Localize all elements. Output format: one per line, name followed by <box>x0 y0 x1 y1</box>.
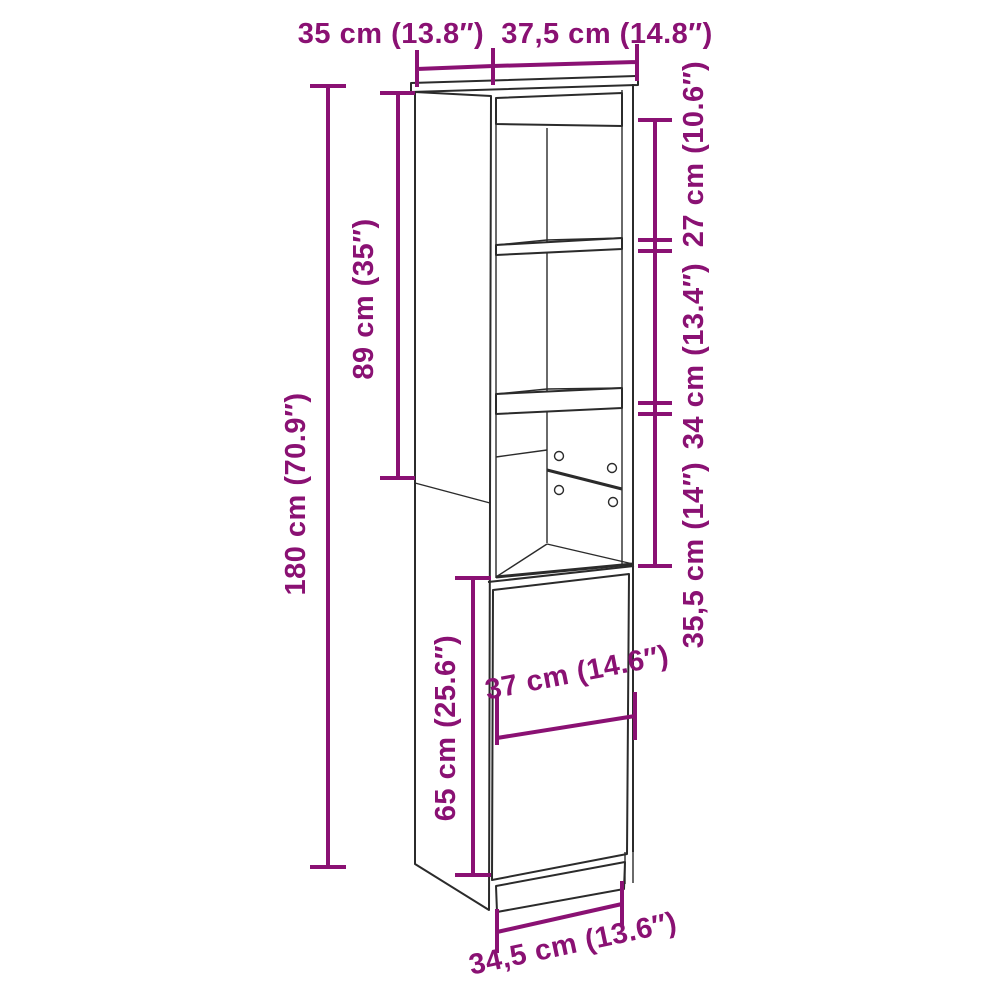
screw-dot <box>555 452 564 461</box>
niche-top-rail <box>496 93 622 126</box>
niche-floor-back-edge <box>547 544 633 564</box>
dim-niche-stack: 27 cm (10.6″) 34 cm (13.4″) 35,5 cm (14″… <box>638 61 710 648</box>
screw-dot <box>609 498 618 507</box>
product-dimension-image: 35 cm (13.8″) 37,5 cm (14.8″) 180 cm (70… <box>0 0 1000 1000</box>
dim-top-depth: 35 cm (13.8″) <box>298 18 493 87</box>
dim-top-depth-label: 35 cm (13.8″) <box>298 18 484 50</box>
dim-total-height-label: 180 cm (70.9″) <box>280 392 312 595</box>
dim-upper-height-label: 89 cm (35″) <box>348 218 380 379</box>
dim-niche-stack-line <box>638 120 672 566</box>
cabinet-right-foot <box>625 852 633 884</box>
screw-dot <box>608 464 617 473</box>
dim-total-height: 180 cm (70.9″) <box>280 86 346 867</box>
dim-niche-top-label: 27 cm (10.6″) <box>678 61 710 247</box>
dim-niche-bottom-label: 35,5 cm (14″) <box>678 462 710 648</box>
dim-total-height-line <box>310 86 346 867</box>
dim-upper-height: 89 cm (35″) <box>348 93 415 478</box>
dim-niche-middle-label: 34 cm (13.4″) <box>678 263 710 449</box>
furniture-dimension-diagram: 35 cm (13.8″) 37,5 cm (14.8″) 180 cm (70… <box>0 0 1000 1000</box>
dim-upper-height-line <box>380 93 415 478</box>
dim-door-height-label: 65 cm (25.6″) <box>430 635 462 821</box>
back-panel-joint-left <box>496 450 547 457</box>
cabinet-top-panel <box>411 76 638 92</box>
shelf-upper <box>496 238 622 255</box>
dim-top-width-label: 37,5 cm (14.8″) <box>501 18 713 50</box>
screw-dot <box>555 486 564 495</box>
